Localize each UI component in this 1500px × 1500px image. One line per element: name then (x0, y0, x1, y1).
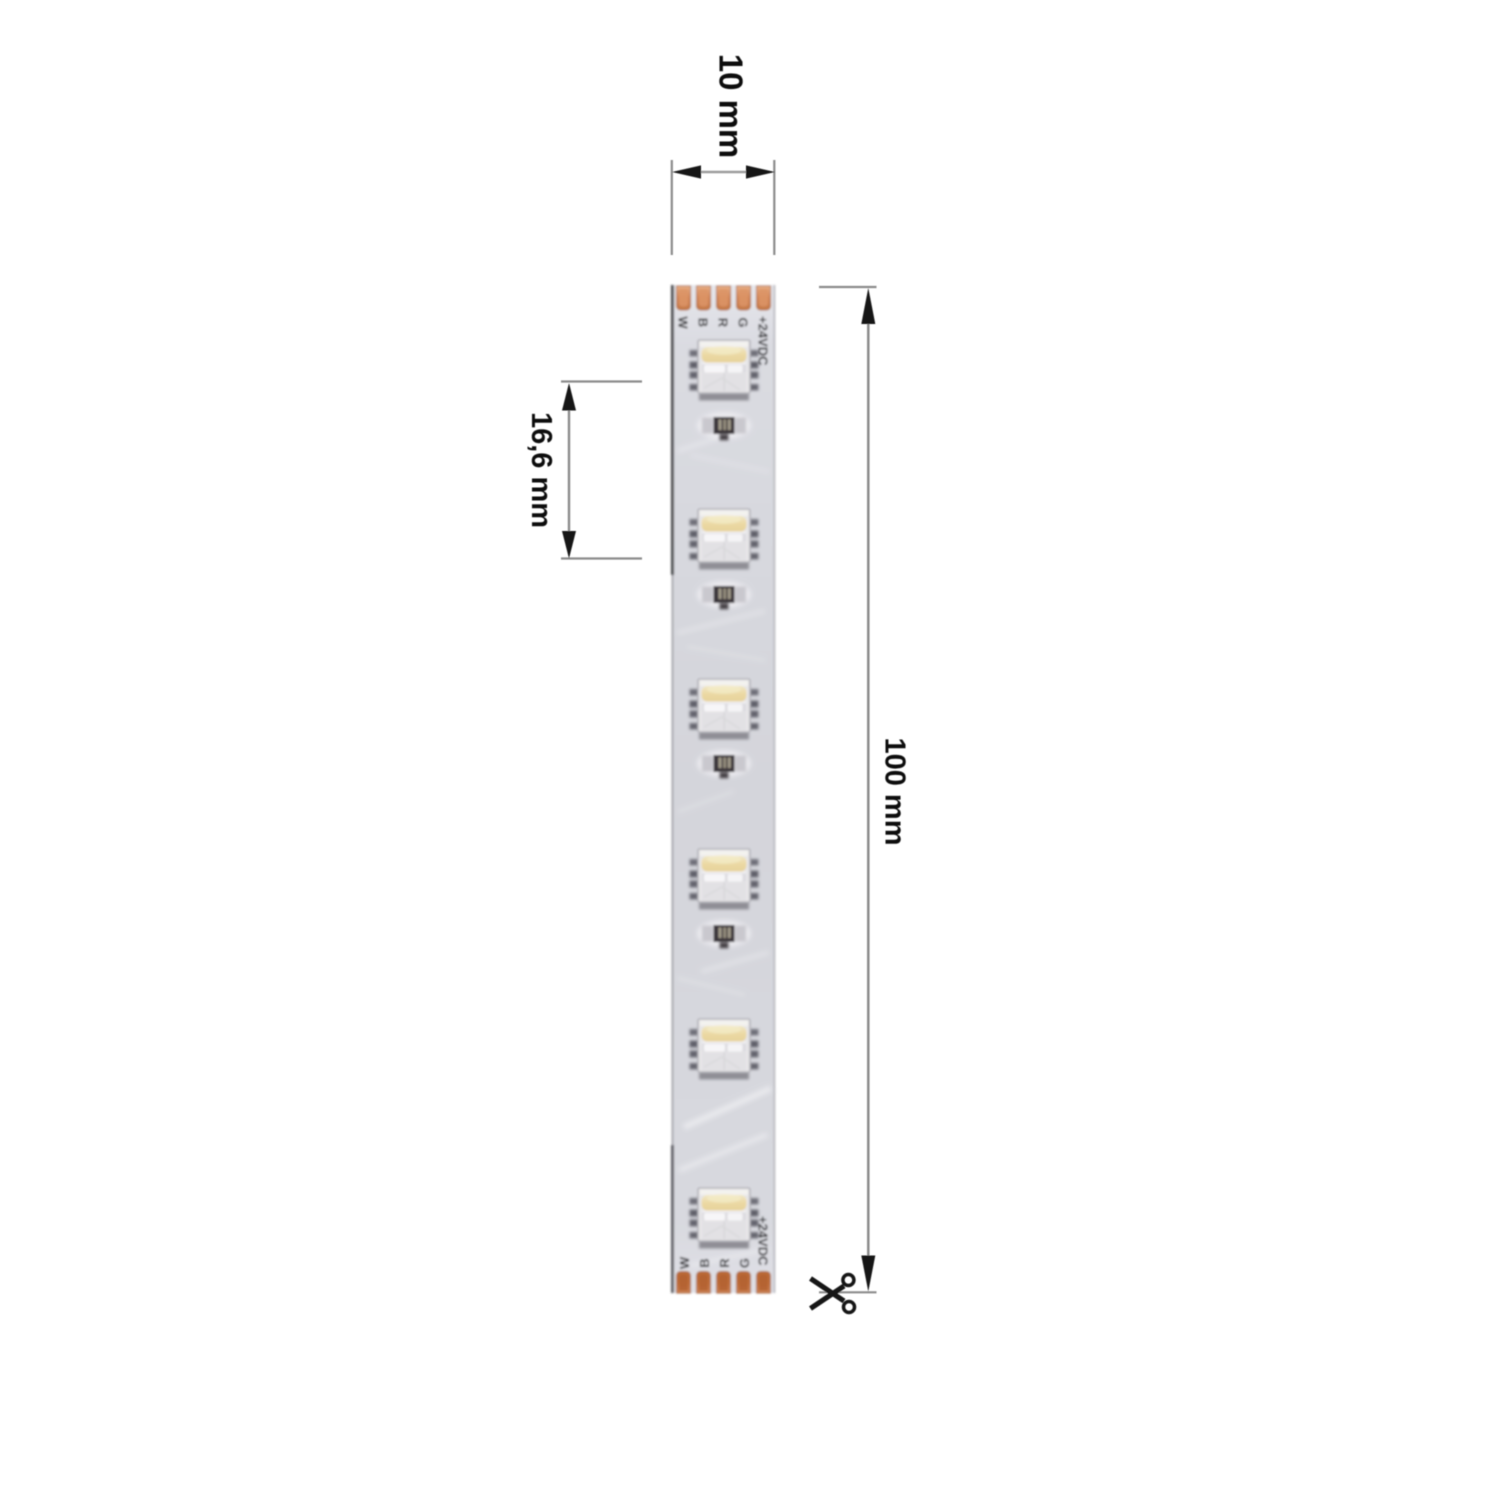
svg-text:G: G (736, 317, 751, 327)
svg-text:16,6 mm: 16,6 mm (525, 412, 557, 528)
svg-text:W: W (676, 316, 691, 329)
svg-text:R: R (716, 318, 731, 328)
svg-text:B: B (696, 318, 711, 327)
svg-text:R: R (717, 1258, 732, 1268)
svg-text:10 mm: 10 mm (713, 54, 750, 159)
svg-text:G: G (737, 1258, 752, 1268)
svg-text:+24VDC: +24VDC (756, 316, 771, 366)
svg-text:+24VDC: +24VDC (756, 1216, 771, 1266)
svg-text:B: B (697, 1258, 712, 1267)
svg-text:100 mm: 100 mm (879, 737, 911, 845)
svg-text:W: W (677, 1256, 692, 1269)
